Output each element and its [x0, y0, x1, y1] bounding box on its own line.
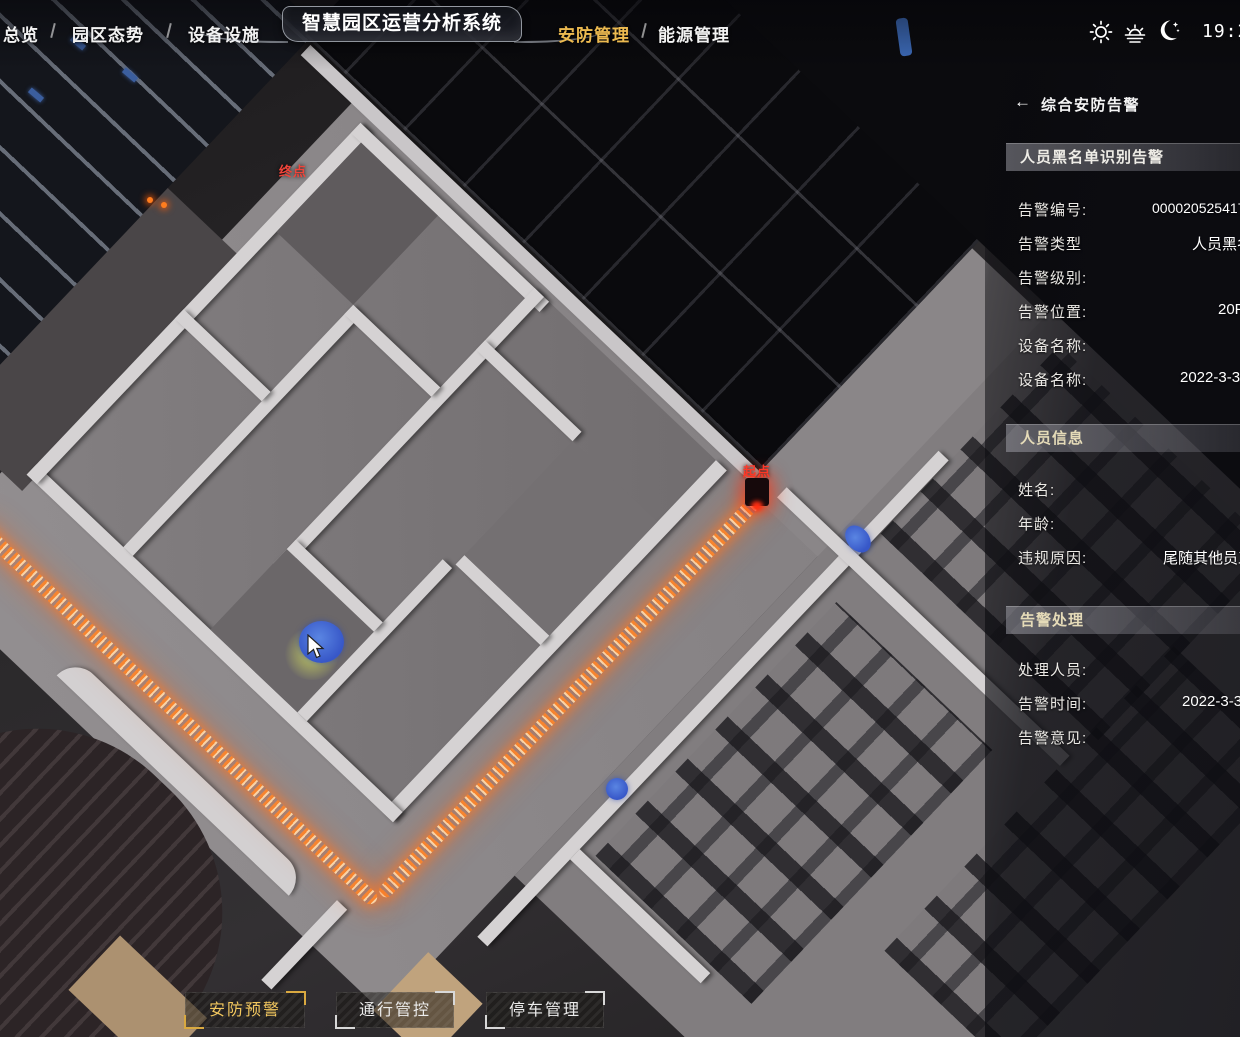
section-header-blacklist-alarm: 人员黑名单识别告警	[1006, 143, 1240, 171]
field-value-alarm-location: 20F	[1218, 301, 1240, 318]
field-label: 告警级别:	[1018, 267, 1087, 288]
panel-title: 综合安防告警	[1041, 94, 1140, 115]
route-end-label: 终点	[279, 161, 307, 180]
alarm-detail-panel: ← 综合安防告警 人员黑名单识别告警 告警编号: 000020525417 告警…	[985, 70, 1240, 1037]
mouse-cursor	[306, 634, 328, 660]
blacklist-person-marker[interactable]	[745, 478, 769, 506]
field-value-device-time: 2022-3-3	[1180, 369, 1240, 386]
field-label: 年龄:	[1018, 513, 1055, 534]
field-label: 违规原因:	[1018, 547, 1087, 568]
app-title: 智慧园区运营分析系统	[282, 6, 522, 42]
sun-icon[interactable]	[1089, 20, 1113, 44]
field-label: 设备名称:	[1018, 335, 1087, 356]
nav-item-campus-status[interactable]: 园区态势	[72, 21, 144, 46]
button-security-warning[interactable]: 安防预警	[185, 992, 305, 1028]
clock-time: 19:24	[1202, 21, 1240, 42]
field-label: 告警类型	[1018, 233, 1082, 254]
camera-device-marker[interactable]	[606, 778, 628, 800]
nav-item-overview[interactable]: 总览	[3, 21, 39, 46]
field-label: 告警时间:	[1018, 693, 1087, 714]
tab-security-management[interactable]: 安防管理	[558, 21, 630, 46]
field-value-alarm-time: 2022-3-3	[1182, 693, 1240, 710]
elevator-indicator-light	[147, 197, 153, 203]
field-label: 告警编号:	[1018, 199, 1087, 220]
field-label: 姓名:	[1018, 479, 1055, 500]
tab-energy-management[interactable]: 能源管理	[658, 21, 730, 46]
back-arrow-icon[interactable]: ←	[1014, 92, 1031, 112]
field-label: 告警意见:	[1018, 727, 1087, 748]
section-header-alarm-handling: 告警处理	[1006, 606, 1240, 634]
sunset-icon[interactable]	[1123, 22, 1147, 46]
smart-campus-app: 终点 起点 总览 园区态势 设备设施 智慧园区运营分析系统 安防管理 能源管理	[0, 0, 1240, 1037]
field-value-alarm-type: 人员黑名单识别告警	[1192, 233, 1240, 254]
button-parking-management[interactable]: 停车管理	[486, 992, 604, 1028]
section-header-person-info: 人员信息	[1006, 424, 1240, 452]
field-label: 设备名称:	[1018, 369, 1087, 390]
field-value-alarm-id: 000020525417	[1152, 200, 1240, 216]
moon-icon[interactable]	[1156, 18, 1180, 42]
button-access-control[interactable]: 通行管控	[336, 992, 454, 1028]
field-label: 告警位置:	[1018, 301, 1087, 322]
field-label: 处理人员:	[1018, 659, 1087, 680]
field-value-violation-reason: 尾随其他员工	[1163, 547, 1240, 568]
elevator-indicator-light	[161, 202, 167, 208]
